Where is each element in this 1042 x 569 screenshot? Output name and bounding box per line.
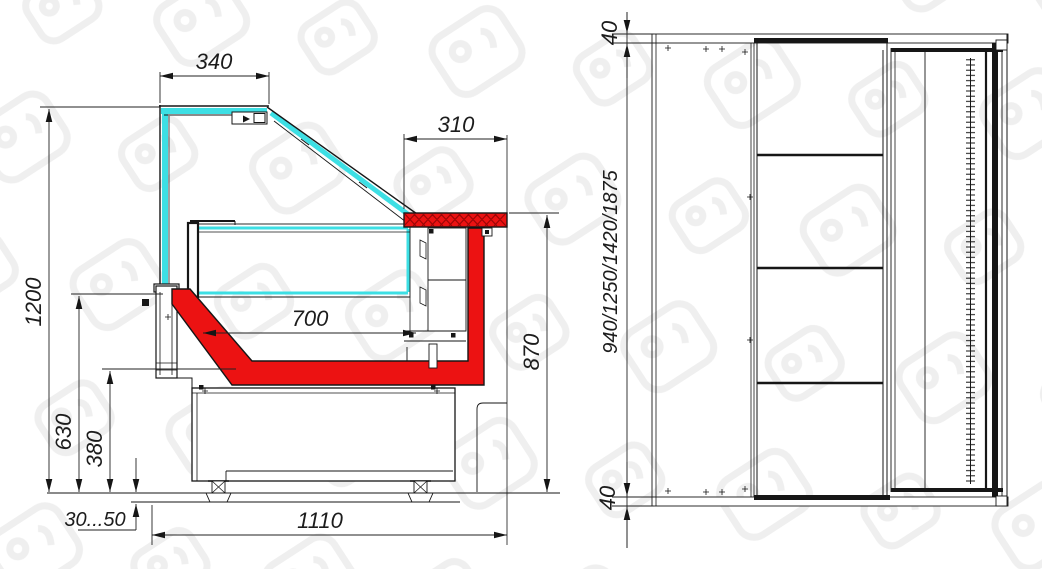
dim-bottom-40-label: 40 — [595, 485, 620, 510]
dim-top-40-label: 40 — [597, 20, 622, 45]
dim-length-options-label: 940/1250/1420/1875 — [600, 169, 622, 353]
dim-310-label: 310 — [438, 112, 475, 137]
dim-foot-adjust-label: 30...50 — [64, 509, 125, 531]
corner-bracket — [996, 496, 1007, 506]
corner-bracket — [996, 40, 1007, 50]
dim-870-label: 870 — [519, 333, 544, 370]
dim-340-label: 340 — [196, 49, 233, 74]
technical-drawing: 340 310 1200 630 380 700 870 30...50 111… — [0, 0, 1042, 569]
dim-1200-label: 1200 — [21, 277, 46, 327]
bolt-mark — [142, 299, 149, 306]
lamp-housing — [254, 114, 265, 123]
dim-700-label: 700 — [292, 306, 329, 331]
drawing-canvas: 340 310 1200 630 380 700 870 30...50 111… — [0, 0, 1042, 569]
dim-1110-label: 1110 — [297, 508, 343, 533]
dim-380-label: 380 — [82, 430, 107, 467]
machinery-base — [192, 388, 455, 481]
dim-630-label: 630 — [51, 413, 76, 450]
